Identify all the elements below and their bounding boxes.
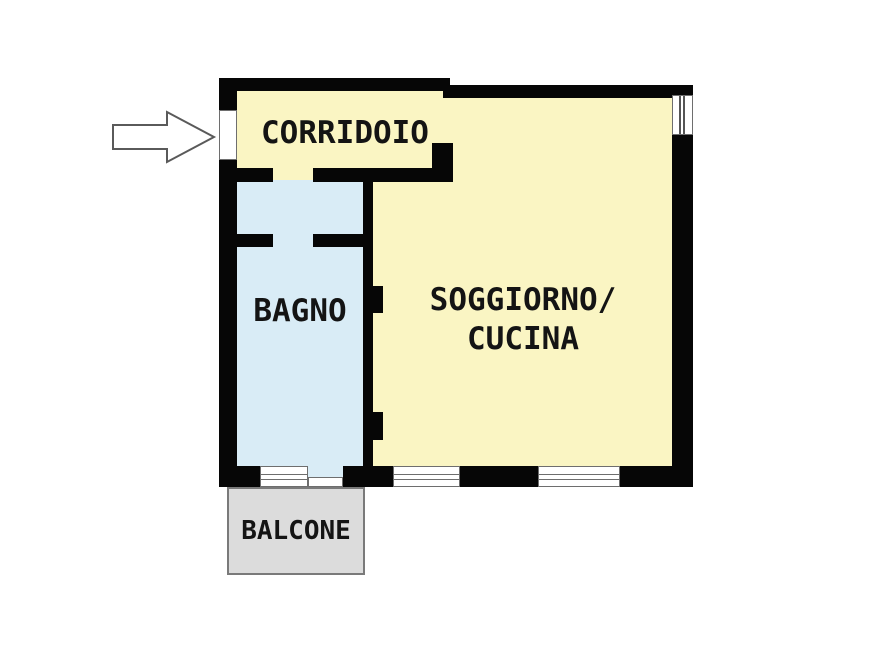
window-soggiorno-2 xyxy=(538,466,620,487)
window-right-wall xyxy=(672,95,693,135)
wall-right xyxy=(672,135,693,487)
balcone-label: BALCONE xyxy=(241,518,351,544)
bagno-label: BAGNO xyxy=(237,296,363,327)
soggiorno-cucina-label: SOGGIORNO/ CUCINA xyxy=(373,281,673,359)
wall-corridor-bottom-left xyxy=(233,168,273,182)
window-bagno xyxy=(260,466,308,487)
wall-jamb-tab-lower xyxy=(373,412,383,440)
wall-bagno-soggiorno xyxy=(363,168,373,487)
wall-antibagno-left xyxy=(233,234,273,247)
wall-bottom-b xyxy=(343,466,393,487)
wall-bottom-d xyxy=(620,466,693,487)
wall-corridor-bottom-right xyxy=(313,168,453,182)
wall-left-lower xyxy=(219,160,237,487)
wall-bottom-c xyxy=(460,466,538,487)
floor-plan: BALCONE CORRIDOIO BAGNO SOGGIORNO/ CUCIN… xyxy=(0,0,893,670)
soggiorno-label-line1: SOGGIORNO/ xyxy=(373,281,673,320)
wall-top-soggiorno xyxy=(443,85,693,98)
wall-top-corridor xyxy=(219,78,450,91)
wall-bottom-a xyxy=(233,466,260,487)
soggiorno-label-line2: CUCINA xyxy=(373,320,673,359)
window-soggiorno-1 xyxy=(393,466,460,487)
entrance-door xyxy=(219,110,237,160)
arrow-right-icon xyxy=(110,109,218,167)
wall-left-upper xyxy=(219,78,237,111)
corridoio-label: CORRIDOIO xyxy=(237,118,453,149)
room-balcone: BALCONE xyxy=(227,487,365,575)
wall-antibagno-right xyxy=(313,234,365,247)
balcony-door-sill xyxy=(308,477,343,487)
